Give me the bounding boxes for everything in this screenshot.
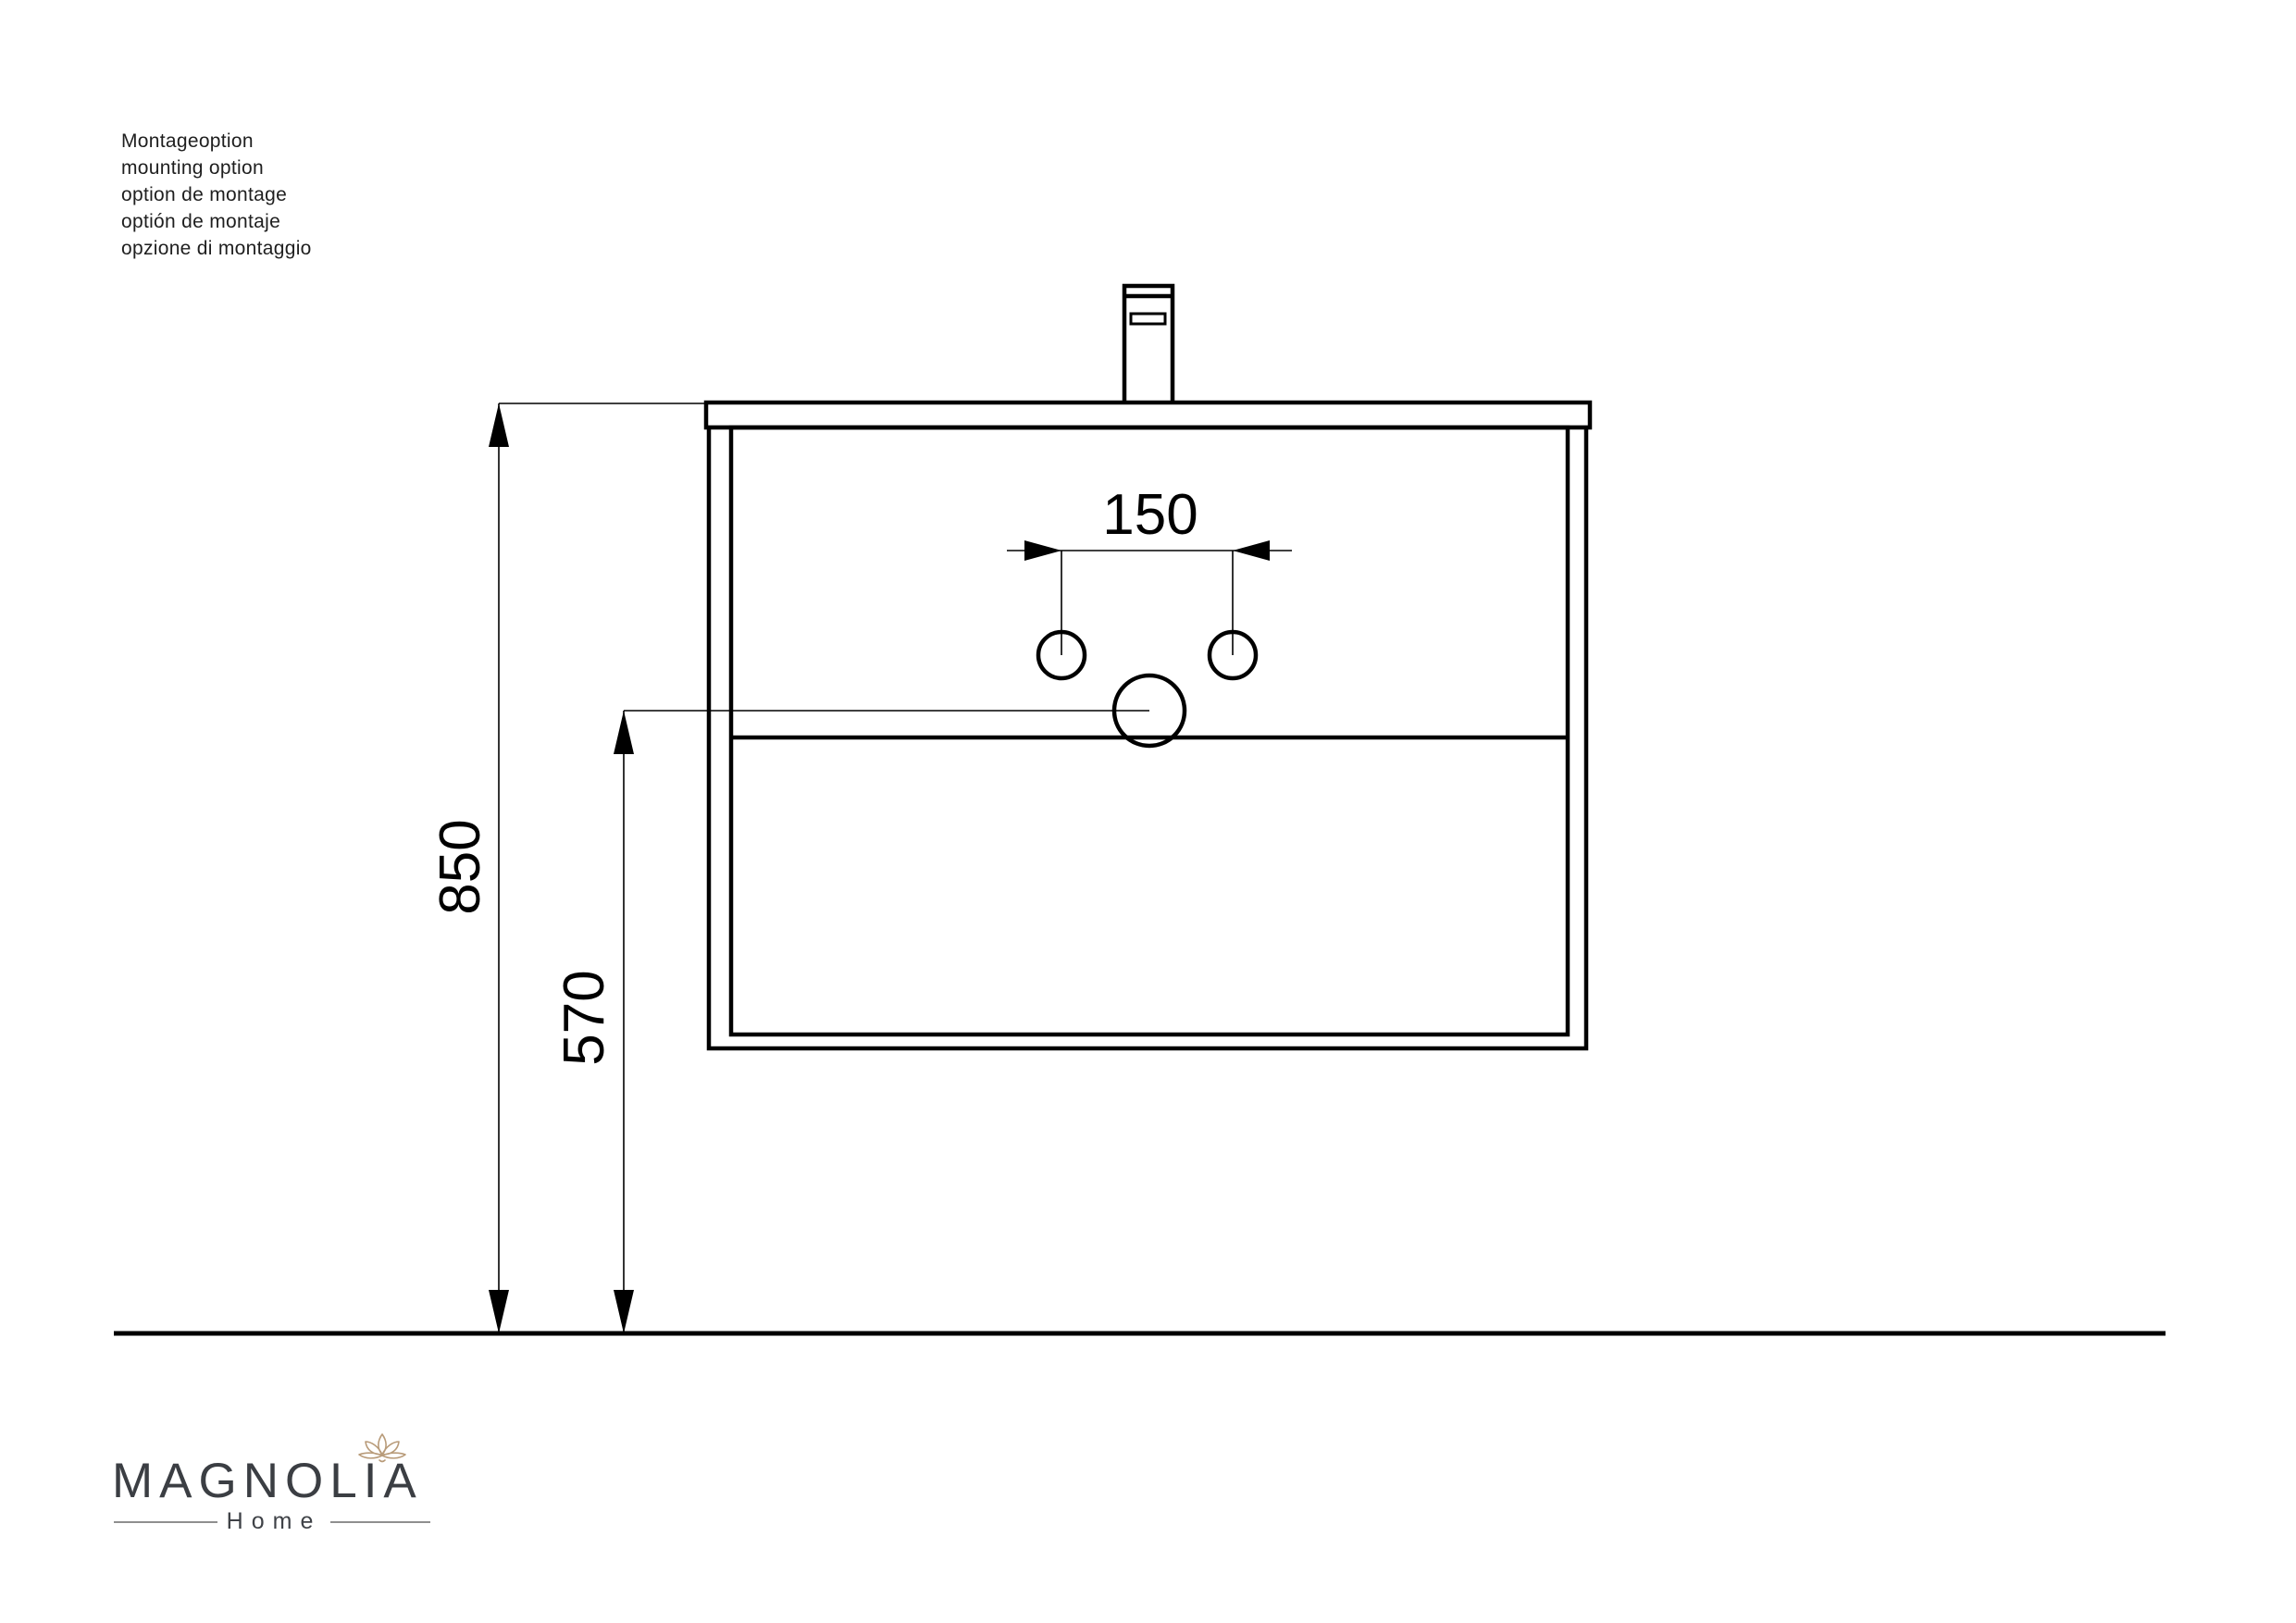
- dimension-label-mount-height: 850: [428, 819, 492, 914]
- countertop: [706, 403, 1590, 427]
- faucet: [1124, 286, 1173, 404]
- mounting-diagram-page: Montageoption mounting option option de …: [0, 0, 2296, 1623]
- arrow-up-icon: [614, 711, 634, 754]
- brand-logo: MAGNOLIA Home: [112, 1429, 432, 1540]
- brand-subtitle-row: Home: [114, 1508, 430, 1535]
- subtitle-right-rule: [330, 1521, 430, 1523]
- brand-subtitle: Home: [225, 1508, 323, 1535]
- dimension-label-hole-spacing: 150: [1102, 483, 1198, 547]
- brand-name: MAGNOLIA: [112, 1456, 423, 1505]
- subtitle-left-rule: [114, 1521, 217, 1523]
- arrow-down-icon: [614, 1290, 634, 1333]
- faucet-slot: [1131, 314, 1165, 324]
- dimension-850: 850: [428, 403, 708, 1333]
- arrow-up-icon: [489, 403, 509, 447]
- arrow-down-icon: [489, 1290, 509, 1333]
- dimension-label-bottom-height: 570: [552, 970, 616, 1065]
- technical-drawing: 570 150 850: [0, 0, 2296, 1623]
